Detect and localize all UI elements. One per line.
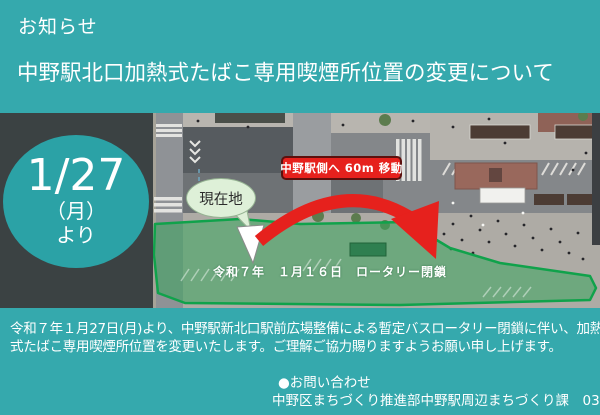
date-badge-suffix: より: [56, 223, 96, 248]
contact-line: 中野区まちづくり推進部中野駅周辺まちづくり課 03-3228-8980: [272, 389, 600, 409]
date-panel: 1/27 （月） より: [0, 113, 153, 308]
body-text-line2: 式たばこ専用喫煙所位置を変更いたします。ご理解ご協力賜りますようお願い申し上げま…: [10, 339, 600, 357]
contact-heading: ●お問い合わせ: [278, 371, 371, 391]
notice-kicker: お知らせ: [18, 12, 98, 39]
current-location-bubble: 現在地: [186, 178, 256, 218]
aerial-map: 中野駅側へ 60m 移動 現在地 令和７年 １月１６日 ロータリー閉鎖: [153, 113, 600, 308]
closure-date-label: 令和７年 １月１６日 ロータリー閉鎖: [213, 263, 447, 280]
body-text-line1: 令和７年１月27日(月)より、中野駅新北口駅前広場整備による暫定バスロータリー閉…: [10, 321, 600, 339]
figure-section: 1/27 （月） より: [0, 113, 600, 308]
page-title: 中野駅北口加熱式たばこ専用喫煙所位置の変更について: [17, 56, 554, 87]
date-badge-weekday: （月）: [46, 199, 106, 223]
date-badge-date: 1/27: [27, 153, 126, 199]
notice-flyer: { "theme": { "background_teal": "#35a9ad…: [0, 0, 600, 415]
date-badge: 1/27 （月） より: [3, 135, 149, 268]
body-text: 令和７年１月27日(月)より、中野駅新北口駅前広場整備による暫定バスロータリー閉…: [10, 321, 600, 356]
move-banner: 中野駅側へ 60m 移動: [281, 156, 402, 180]
